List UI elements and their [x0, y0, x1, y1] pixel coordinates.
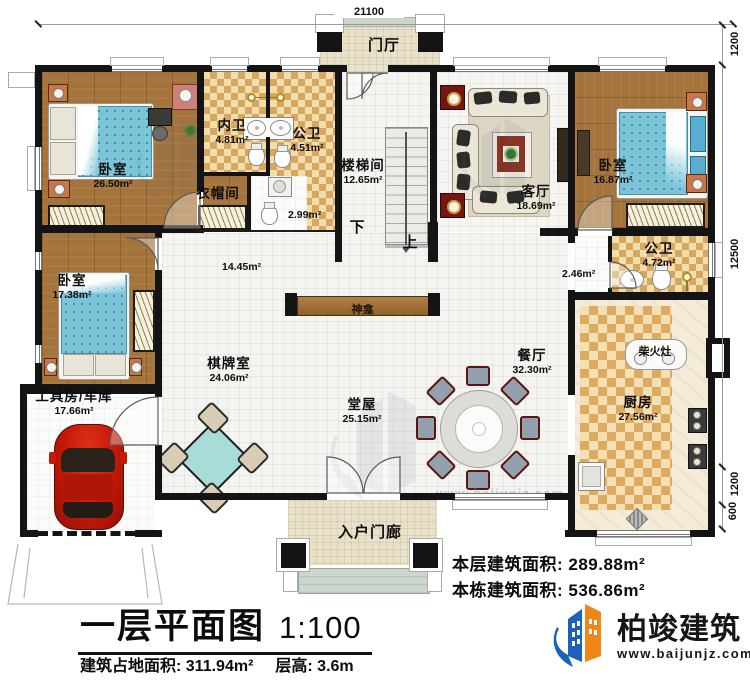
room-label-garage: 工具房/车库17.66m² [13, 389, 135, 417]
room-label-bedroom-tr: 卧室16.87m² [568, 158, 658, 186]
shrine-label: 神龛 [297, 300, 428, 318]
door-arc [126, 238, 158, 270]
room-label-public-bath-top: 公卫4.51m² [262, 126, 352, 154]
room-label-main-hall: 堂屋25.15m² [317, 397, 407, 425]
door-arc [578, 196, 612, 230]
dimension-right-label: 600 [727, 481, 739, 541]
cloak-area-label: 2.99m² [288, 209, 321, 221]
stat-land-and-height: 建筑占地面积: 311.94m²层高: 3.6m [80, 652, 354, 676]
driveway-guides [24, 548, 148, 598]
dimension-right-label: 1200 [729, 14, 741, 74]
door-arc [364, 457, 400, 493]
dimension-line-right [722, 25, 723, 530]
room-label-public-bath-right: 公卫4.72m² [614, 241, 704, 269]
plan-title: 一层平面图1:100 [78, 598, 372, 655]
brand-name: 柏竣建筑 [617, 604, 741, 648]
stat-this-floor: 本层建筑面积: 289.88m² [452, 550, 645, 575]
door-arc [327, 457, 363, 493]
dimension-top-label: 21100 [334, 6, 404, 18]
room-label-living-room: 客厅18.69m² [491, 184, 581, 212]
floor-plan-canvas: www.baijunjz.com [0, 0, 750, 680]
dimension-right-label: 12500 [729, 224, 741, 284]
room-label-dining-room: 餐厅32.30m² [487, 348, 577, 376]
dimension-line-top [38, 24, 733, 25]
door-arc [362, 73, 388, 99]
room-label-game-room: 棋牌室24.06m² [184, 356, 274, 384]
room-label-stairwell: 楼梯间12.65m² [318, 158, 408, 186]
room-label-foyer: 门厅 [344, 37, 424, 54]
room-label-bedroom-tl: 卧室26.50m² [63, 162, 163, 190]
stair-down-label: 下 [345, 219, 369, 237]
wood-stove-label: 柴火灶 [625, 342, 685, 360]
driveway-outline [8, 544, 162, 604]
corridor-area-label: 14.45m² [222, 261, 261, 273]
room-label-entry-porch: 入户门廊 [320, 524, 420, 541]
room-label-bedroom-left: 卧室17.38m² [27, 273, 117, 301]
stair-up-label: 上 [398, 234, 422, 252]
brand-url: www.baijunjz.com [617, 646, 750, 661]
room-label-kitchen: 厨房27.56m² [593, 395, 683, 423]
brand-logo-icon [543, 598, 615, 674]
room-label-cloakroom: 衣帽间 [172, 186, 264, 202]
bath-lobby-area-label: 2.46m² [562, 268, 595, 280]
